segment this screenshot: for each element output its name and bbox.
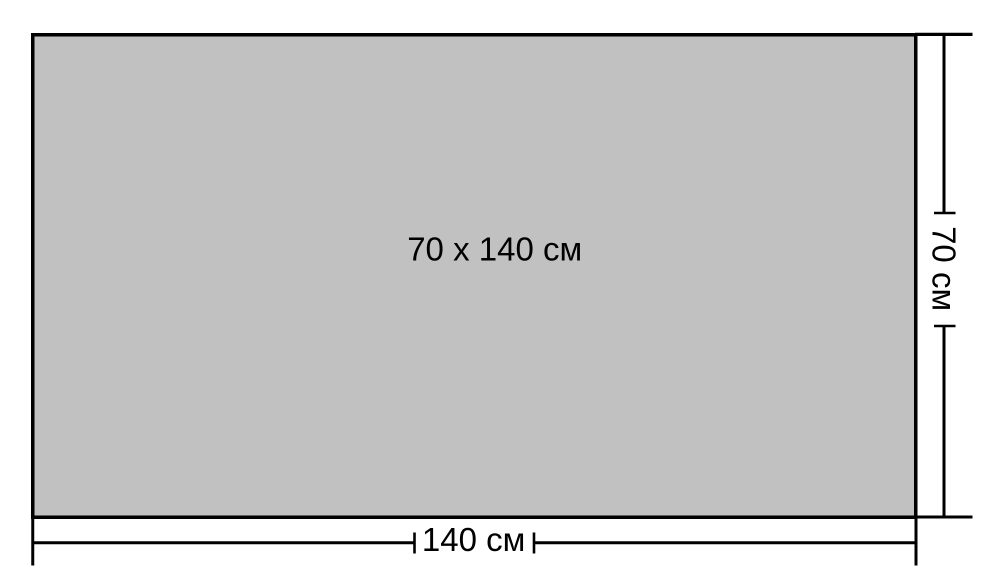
svg-text:70 x 140 см: 70 x 140 см: [407, 231, 582, 268]
svg-text:140 см: 140 см: [422, 521, 525, 558]
svg-text:70 см: 70 см: [925, 226, 962, 311]
